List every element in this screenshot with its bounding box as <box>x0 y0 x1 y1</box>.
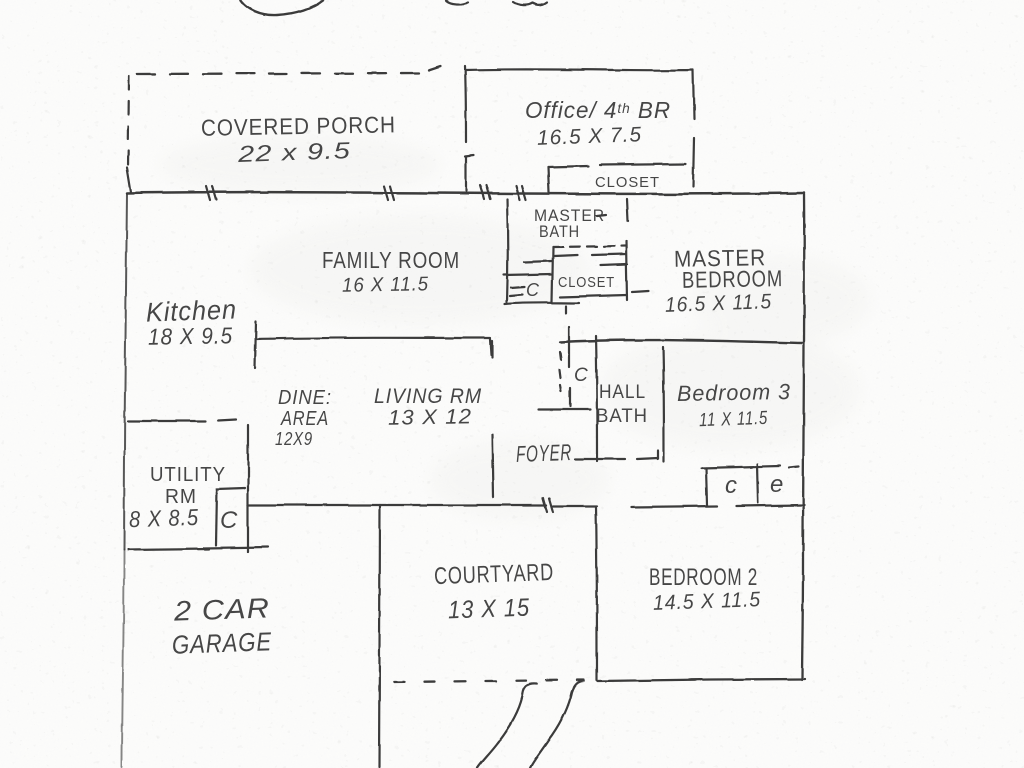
svg-text:16.5 X 7.5: 16.5 X 7.5 <box>537 123 643 150</box>
svg-text:13 X 15: 13 X 15 <box>448 594 531 625</box>
svg-text:AREA: AREA <box>280 408 329 430</box>
svg-text:2 CAR: 2 CAR <box>172 592 270 626</box>
svg-text:13 X 12: 13 X 12 <box>388 405 472 429</box>
svg-text:HALL: HALL <box>599 382 646 403</box>
svg-text:Bedroom 3: Bedroom 3 <box>677 379 791 406</box>
svg-text:BEDROOM 2: BEDROOM 2 <box>649 564 758 591</box>
svg-text:16 X 11.5: 16 X 11.5 <box>342 273 429 297</box>
svg-text:BATH: BATH <box>539 222 580 241</box>
svg-text:FOYER: FOYER <box>516 439 573 467</box>
svg-text:CLOSET: CLOSET <box>595 174 660 191</box>
svg-text:GARAGE: GARAGE <box>171 626 272 659</box>
svg-text:Office/ 4th BR: Office/ 4th BR <box>525 97 671 123</box>
svg-text:UTILITY: UTILITY <box>150 464 226 486</box>
svg-text:C: C <box>526 280 540 300</box>
svg-text:COVERED PORCH: COVERED PORCH <box>201 111 396 140</box>
svg-text:22 x 9.5: 22 x 9.5 <box>236 137 351 167</box>
svg-text:BEDROOM: BEDROOM <box>682 265 783 293</box>
svg-text:16.5 X 11.5: 16.5 X 11.5 <box>665 290 773 317</box>
svg-text:14.5 X 11.5: 14.5 X 11.5 <box>653 588 762 615</box>
svg-text:FAMILY ROOM: FAMILY ROOM <box>322 247 460 273</box>
svg-text:e: e <box>770 471 784 498</box>
svg-text:18 X 9.5: 18 X 9.5 <box>148 322 233 349</box>
svg-text:C: C <box>220 507 238 534</box>
svg-text:DINE:: DINE: <box>278 387 332 409</box>
svg-text:12X9: 12X9 <box>275 429 313 449</box>
svg-text:11 X 11.5: 11 X 11.5 <box>699 408 769 431</box>
svg-text:CLOSET: CLOSET <box>558 274 615 291</box>
svg-text:BATH: BATH <box>596 406 648 427</box>
svg-text:COURTYARD: COURTYARD <box>434 559 555 590</box>
svg-text:C: C <box>574 365 589 386</box>
svg-text:c: c <box>725 472 738 499</box>
svg-text:8 X 8.5: 8 X 8.5 <box>129 504 200 532</box>
